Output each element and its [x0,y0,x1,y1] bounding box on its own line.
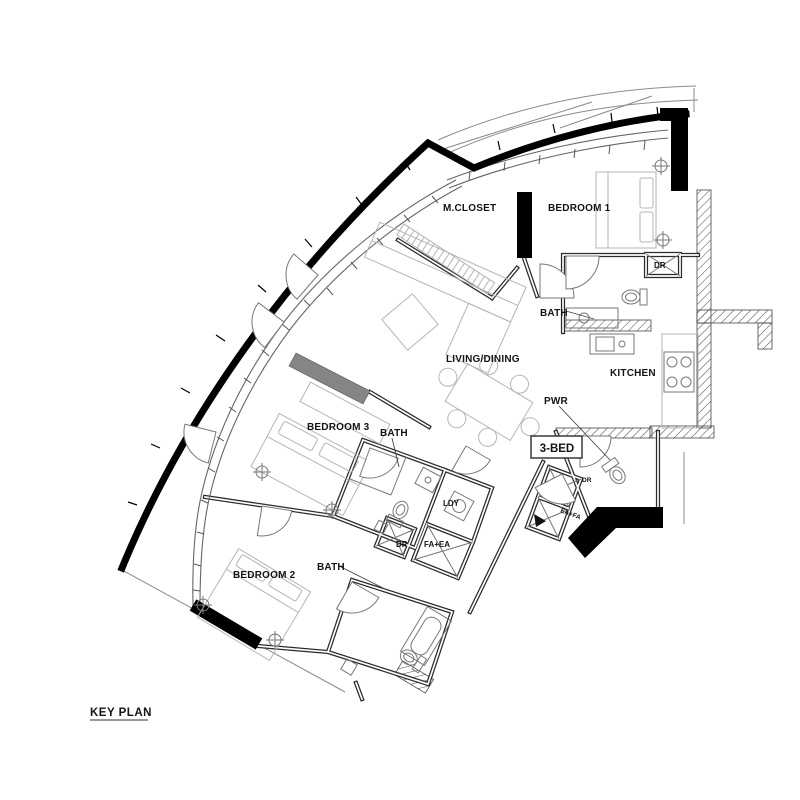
room-label-living-dining: LIVING/DINING [446,354,520,365]
room-label-bedroom1: BEDROOM 1 [548,203,611,214]
feature-wall-gray [289,353,370,404]
shell-cap [660,108,688,121]
shaft-label-dr-bath1: DR [654,261,666,270]
unit-type-badge: 3-BED [531,436,582,458]
room-label-bedroom3: BEDROOM 3 [307,422,370,433]
room-label-bath2: BATH [317,562,345,573]
furniture-layer [194,157,698,660]
coffee-table [382,294,438,350]
room-label-pwr: PWR [544,396,569,407]
closet-shelving [397,224,495,294]
key-plan-title: KEY PLAN [90,707,152,720]
room-label-ldy: LDY [443,499,460,508]
shear-wall-entry [568,507,663,558]
column-bedroom1 [517,192,532,258]
interior-walls [205,240,698,699]
key-plan-text: KEY PLAN [90,707,152,719]
floor-plan-page: M.CLOSET BEDROOM 1 BATH LIVING/DINING KI… [0,0,800,800]
room-label-kitchen: KITCHEN [610,368,656,379]
shaft-label-dr-service: DR [396,540,408,549]
room-label-bath3: BATH [380,428,408,439]
unit-type-label: 3-BED [540,443,575,455]
floor-plan-canvas: M.CLOSET BEDROOM 1 BATH LIVING/DINING KI… [0,0,800,800]
toilet-pwr [602,457,629,487]
shaft-label-fa-ea: FA+EA [424,540,450,549]
room-label-m-closet: M.CLOSET [443,203,496,214]
room-label-bath1: BATH [540,308,568,319]
toilet-bath1 [622,289,647,305]
column-northeast [671,112,688,191]
balcony-slab-lines [122,86,698,692]
survey-target-icon [253,463,271,481]
shaft-label-dr-entry: DR [582,477,592,484]
entry-arrow-icon [534,514,546,527]
kitchen-counter [590,334,698,428]
survey-target-icon [654,231,672,249]
room-label-bedroom2: BEDROOM 2 [233,570,296,581]
